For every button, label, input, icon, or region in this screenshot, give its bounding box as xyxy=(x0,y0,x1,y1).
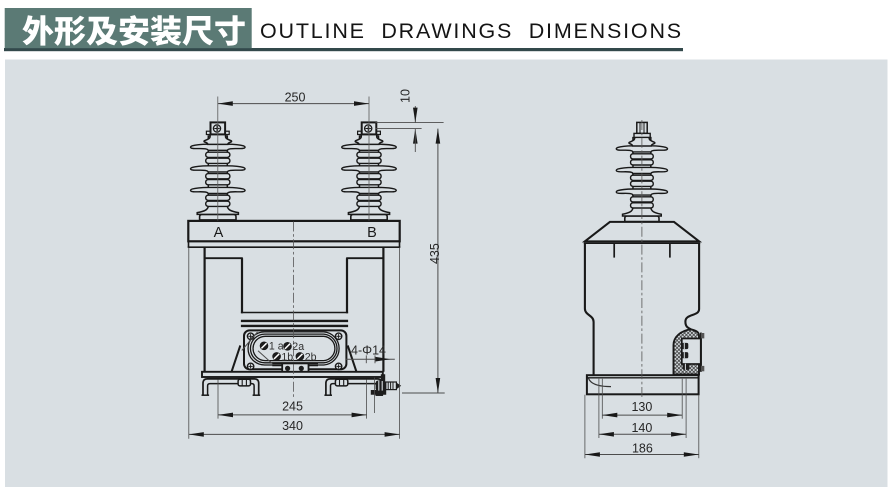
svg-text:2b: 2b xyxy=(305,351,317,363)
svg-text:10: 10 xyxy=(399,89,413,103)
svg-text:250: 250 xyxy=(285,91,306,105)
svg-text:130: 130 xyxy=(631,400,652,414)
svg-text:B: B xyxy=(367,225,377,241)
svg-text:4-Φ14: 4-Φ14 xyxy=(351,344,386,358)
svg-text:OUTLINE DRAWINGS DIMENSIONS: OUTLINE DRAWINGS DIMENSIONS xyxy=(260,19,683,43)
svg-text:186: 186 xyxy=(632,441,653,455)
svg-text:A: A xyxy=(214,225,224,241)
svg-text:2a: 2a xyxy=(292,341,304,353)
svg-text:340: 340 xyxy=(282,419,303,433)
svg-text:435: 435 xyxy=(428,243,442,264)
svg-text:140: 140 xyxy=(631,421,652,435)
svg-text:1b: 1b xyxy=(281,351,293,363)
svg-text:245: 245 xyxy=(282,400,303,414)
